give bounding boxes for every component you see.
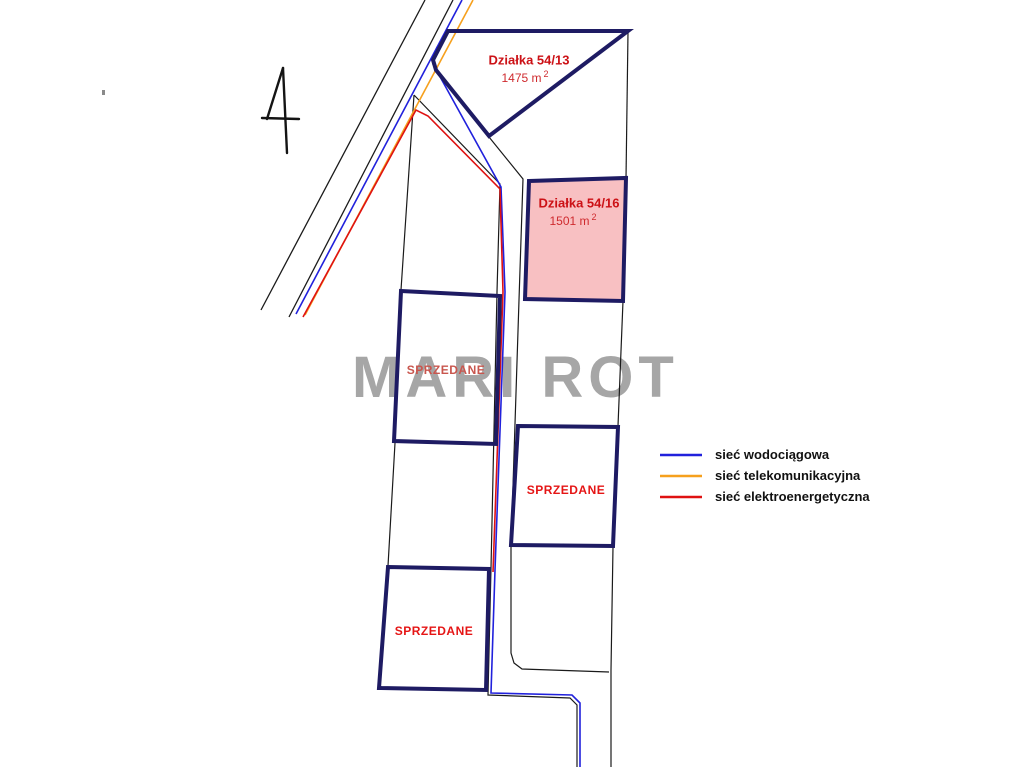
sold-badge-right: SPRZEDANE xyxy=(527,483,606,497)
legend-label-telecom: sieć telekomunikacyjna xyxy=(715,468,860,483)
power-network-line xyxy=(303,110,503,572)
plot-54-16-label: Działka 54/16 xyxy=(539,196,620,211)
road-lines xyxy=(261,0,453,317)
water-network-line xyxy=(296,0,580,767)
map-dot xyxy=(102,90,105,95)
north-arrow-icon xyxy=(262,68,299,153)
legend-row-power: sieć elektroenergetyczna xyxy=(660,486,870,507)
legend-label-power: sieć elektroenergetyczna xyxy=(715,489,870,504)
sold-badge-left-bottom: SPRZEDANE xyxy=(395,624,474,638)
plot-54-16-area-value: 1501 m xyxy=(549,214,589,228)
plot-map-canvas: MARI ROT xyxy=(0,0,1024,768)
legend-row-water: sieć wodociągowa xyxy=(660,444,870,465)
plot-54-13-area-value: 1475 m xyxy=(501,71,541,85)
legend-label-water: sieć wodociągowa xyxy=(715,447,829,462)
plot-54-13-area-sup: 2 xyxy=(544,69,549,79)
utilities-legend: sieć wodociągowa sieć telekomunikacyjna … xyxy=(660,444,870,507)
water-line-swatch-icon xyxy=(660,453,702,457)
survey-map xyxy=(0,0,1024,768)
telecom-line-swatch-icon xyxy=(660,474,702,478)
sold-badge-left-top: SPRZEDANE xyxy=(407,363,486,377)
plot-54-16-area: 1501 m2 xyxy=(549,212,596,228)
plot-54-13-label: Działka 54/13 xyxy=(489,53,570,68)
power-line-swatch-icon xyxy=(660,495,702,499)
legend-row-telecom: sieć telekomunikacyjna xyxy=(660,465,870,486)
plot-54-16-area-sup: 2 xyxy=(592,212,597,222)
plot-54-13-area: 1475 m2 xyxy=(501,69,548,85)
parcel-boundary-lines xyxy=(380,32,628,767)
